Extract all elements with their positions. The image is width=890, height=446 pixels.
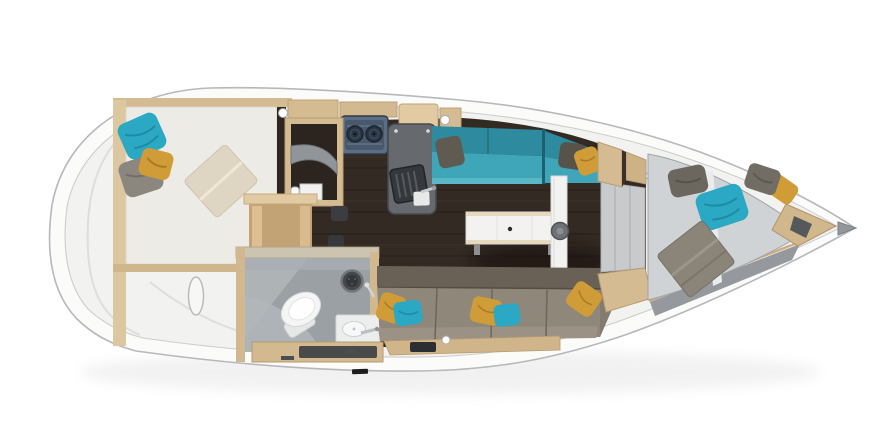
dome-light-galley [441, 116, 450, 125]
vberth-locker-top-1[interactable] [598, 142, 622, 187]
settee-teal-pillow-2 [493, 303, 521, 328]
boat-floorplan-render [0, 0, 890, 446]
desk-top[interactable] [244, 194, 317, 204]
dome-light-aft [279, 109, 288, 118]
aft-cabin-top-wall [113, 98, 292, 107]
head-compartment [236, 247, 383, 362]
desk-leg-right [300, 206, 310, 248]
settee-teal-pillow-1 [392, 299, 423, 327]
table-center-dot [508, 227, 512, 231]
head-wall-band [245, 258, 370, 270]
head-left-wall [236, 247, 245, 362]
head-top-wall [236, 247, 379, 258]
floor-item-1 [331, 206, 348, 221]
head-sink[interactable] [336, 315, 380, 346]
vanity-handle-2[interactable] [347, 349, 355, 353]
settee-speaker [410, 342, 436, 352]
galley-sink-counter[interactable] [388, 124, 436, 214]
companionway [285, 118, 343, 206]
table-leg-left [474, 244, 480, 255]
teal-settee-seam [542, 129, 546, 184]
galley-stove[interactable] [341, 116, 388, 154]
galley-locker-2[interactable] [340, 102, 397, 117]
floorplan-canvas [0, 0, 890, 446]
vanity-glass-inset [299, 346, 377, 358]
teal-settee-front-lip [432, 178, 542, 184]
vanity-handle-1[interactable] [281, 356, 294, 360]
dome-light-settee [442, 336, 450, 344]
oval-hatch-handle[interactable] [189, 277, 204, 315]
hull-transducer-mark [352, 369, 368, 375]
head-vanity [252, 342, 383, 362]
desk-leg-left [252, 206, 262, 252]
vberth-door[interactable] [601, 182, 645, 272]
